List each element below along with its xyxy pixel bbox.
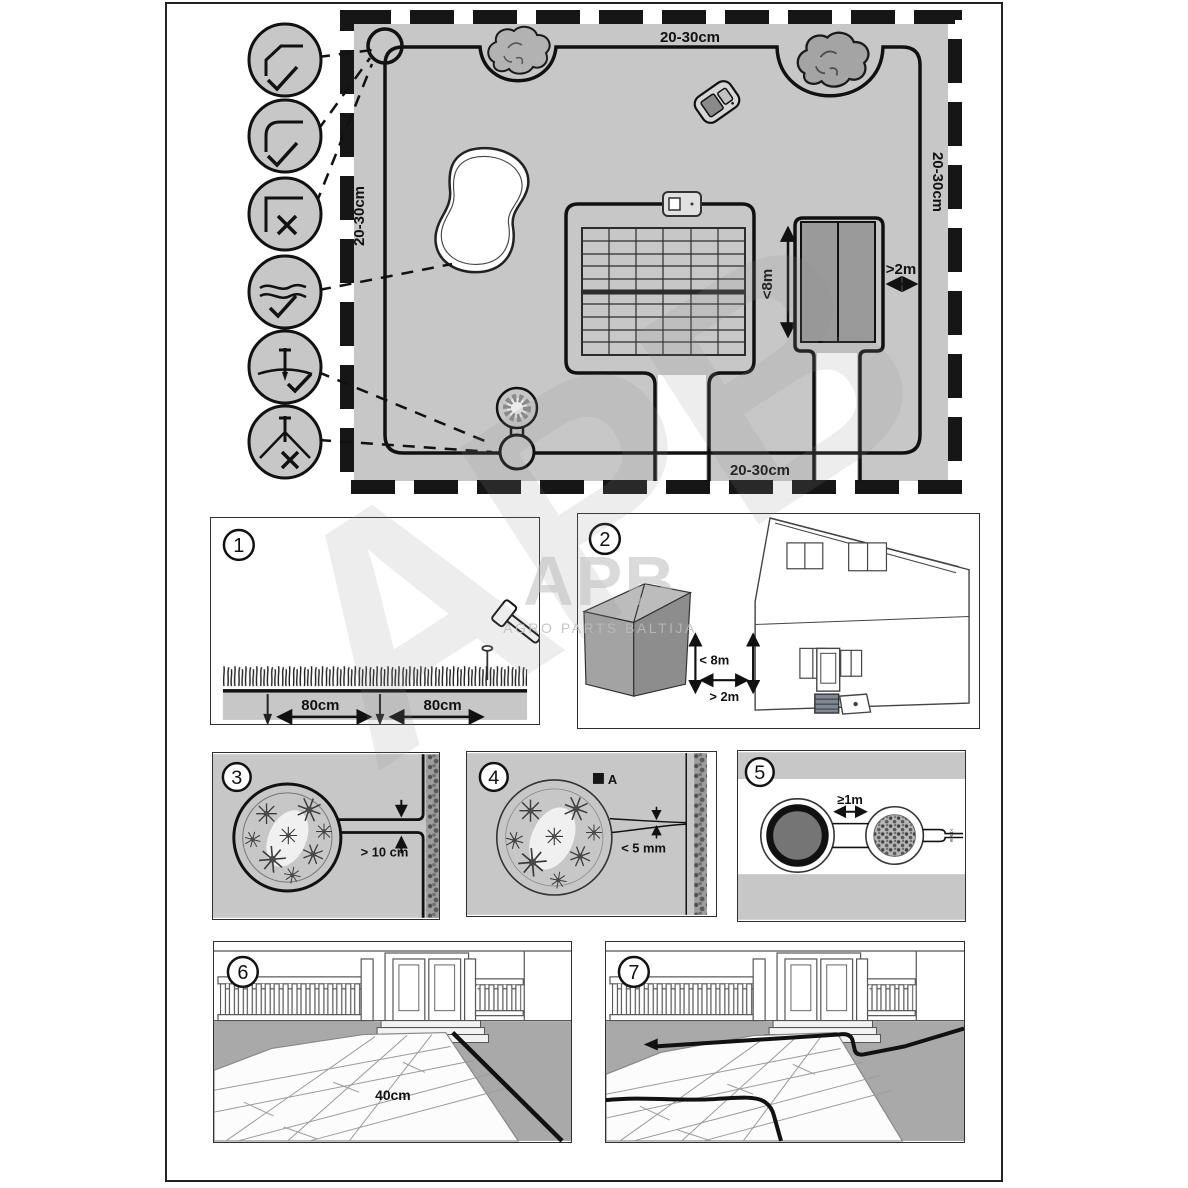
bush-island [866,807,923,864]
step-7-number: 7 [628,962,639,984]
distance-label: ≥1m [837,792,863,807]
path-offset-label: 40cm [375,1087,411,1103]
step-2-number: 2 [599,529,610,551]
shed-gap-label: > 2m [709,689,739,704]
panel-7-wire-across-path: 7 [605,941,965,1143]
panel-4-island-close-wires: A < 5 mm 4 [466,751,717,917]
step-4-number: 4 [488,767,499,789]
garden-passage [658,375,706,481]
panel-3-island-gap: > 10 cm 3 [212,752,440,920]
flower-bed [497,780,612,895]
manual-page: 20-30cm 20-30cm 20-30cm 20-30cm <8m >2m [0,0,1188,1188]
step-3-number: 3 [231,767,242,789]
callout-wire-splice-ok-icon [249,256,321,328]
margin-label-bottom: 20-30cm [730,462,790,479]
step-6-number: 6 [237,962,248,984]
tree-island [761,799,834,872]
callout-corner-rounded-ok-icon [249,100,321,172]
hedge-strip [426,754,439,918]
porch [214,951,571,1021]
shed-height-label: <8m [759,269,776,299]
panel-2-building-clearance: 2 < 8m > 2m [577,513,980,729]
hammer-icon [491,599,539,650]
panel-5-island-distance: ≥1m >10cm 5 [737,750,966,922]
margin-label-top: 20-30cm [660,29,720,46]
gap-label: > 10 cm [361,844,409,859]
panel-1-peg-spacing: 1 80cm 80cm [210,517,540,725]
flower-bed [234,784,341,891]
margin-label-left: 20-30cm [351,186,368,246]
callout-corner-chamfered-ok-icon [249,24,321,96]
shed-gap-label: >2m [886,261,916,278]
step-5-number: 5 [754,762,765,784]
margin-label-right: 20-30cm [929,152,946,212]
shed-height-label: < 8m [699,652,729,667]
panel-6-wire-beside-path: 40cm 6 [213,941,572,1143]
shed-passage [817,353,857,481]
house-steps [815,694,871,714]
shed-3d [584,584,690,696]
peg-spacing-label-right: 80cm [424,698,462,714]
step-1-number: 1 [233,535,244,557]
charging-station-icon [663,192,701,216]
garden-overview-diagram: 20-30cm 20-30cm 20-30cm 20-30cm <8m >2m [0,0,1188,505]
hedge-strip [694,753,707,915]
gap-label: < 5 mm [621,840,666,855]
callout-corner-sharp-bad-icon [249,178,321,250]
house-outline [755,518,969,714]
porch [606,951,964,1021]
connection-point-marker [593,773,604,784]
connection-point-label: A [608,772,617,787]
flower-icon [507,398,527,418]
neck-gap-label: >10cm [949,829,954,843]
grass [223,665,527,691]
peg-spacing-label-left: 80cm [301,698,339,714]
